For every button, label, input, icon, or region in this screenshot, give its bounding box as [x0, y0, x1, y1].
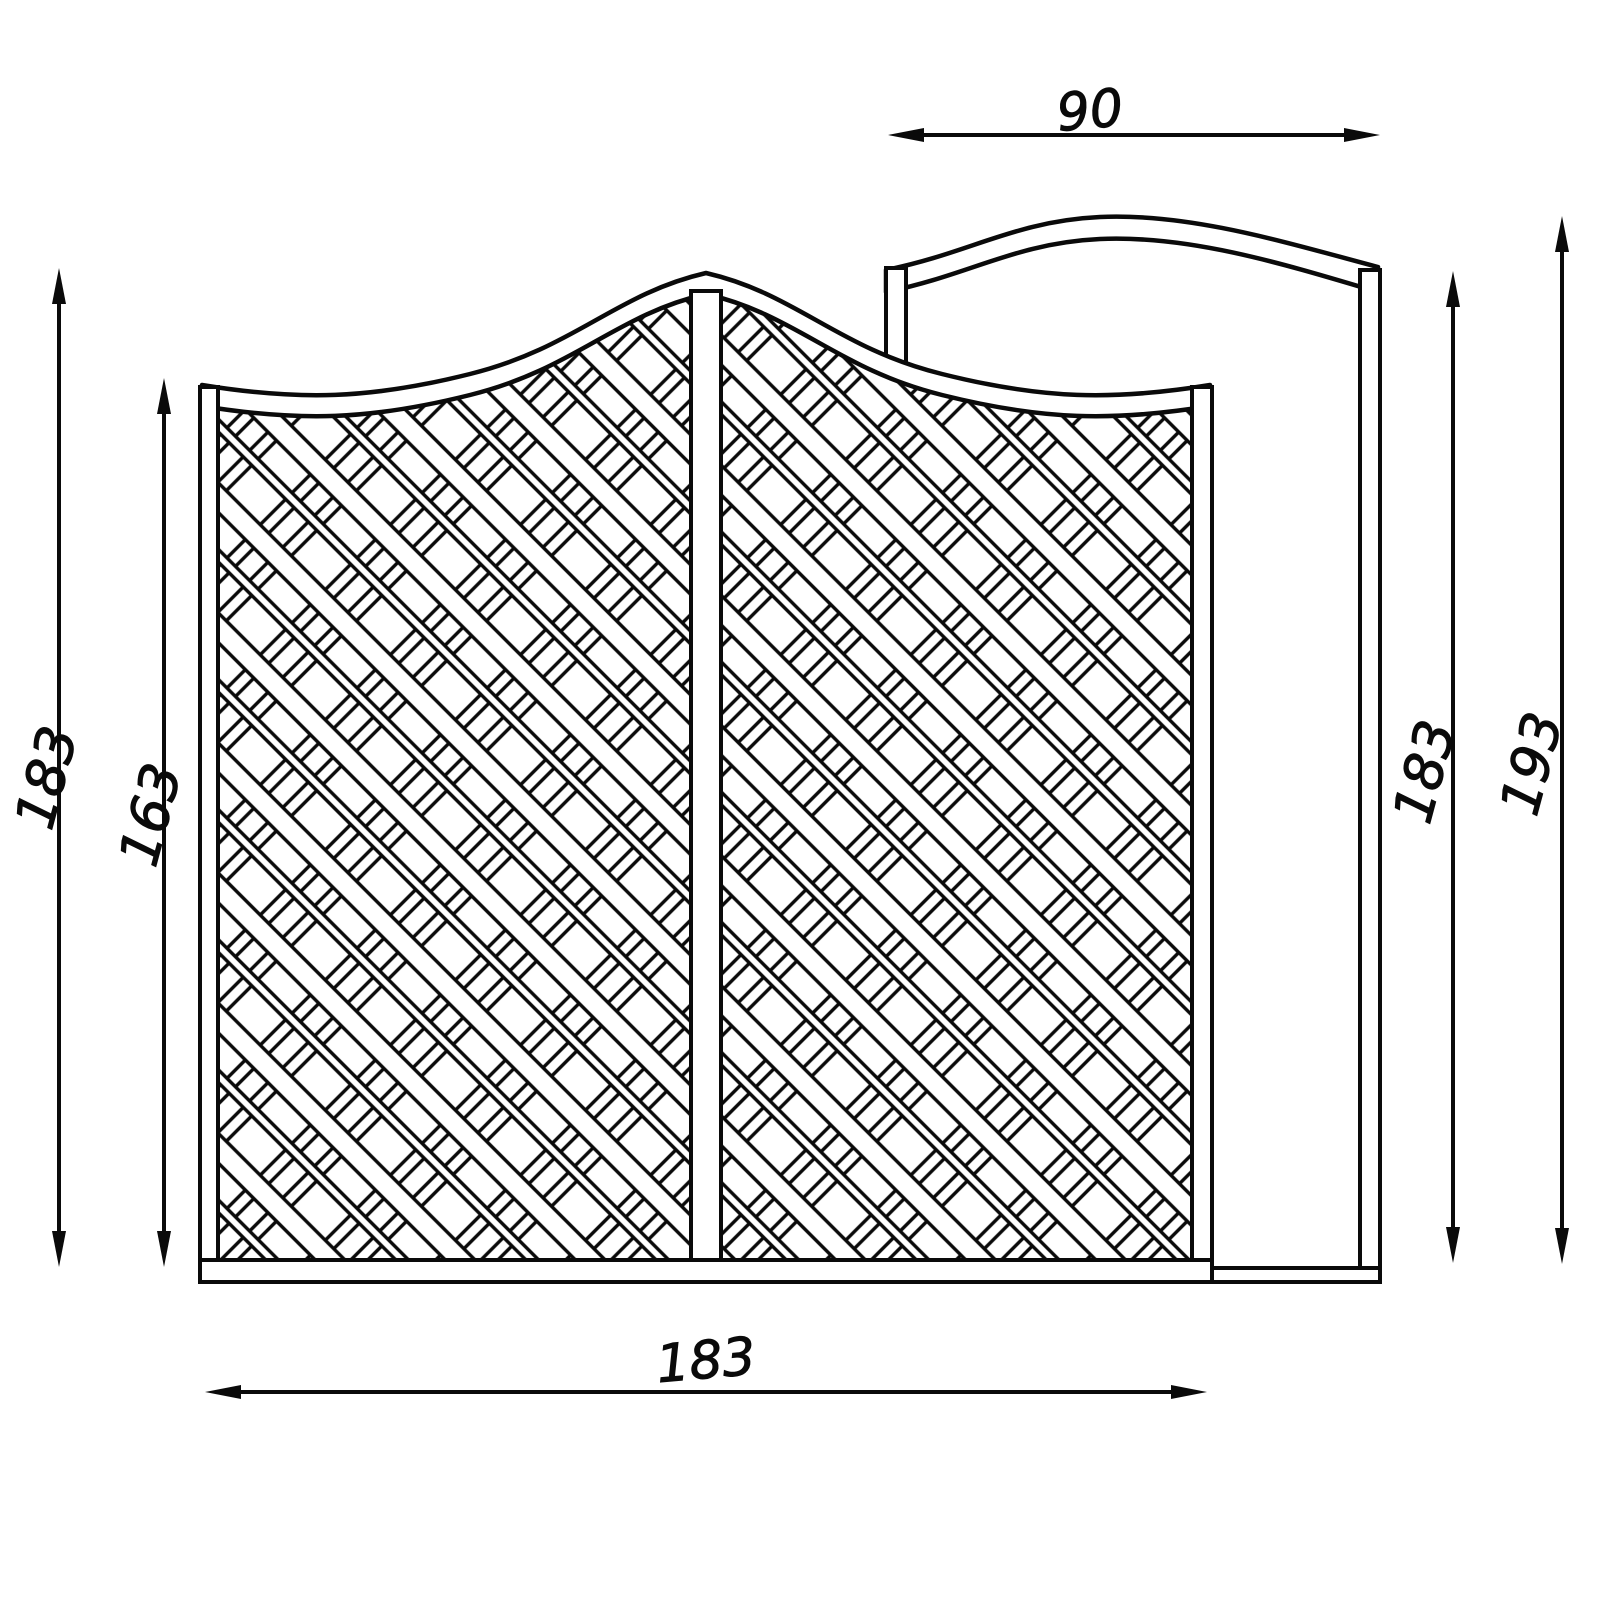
- arrow-up-icon: [1446, 271, 1460, 307]
- dimension-top-width: 90: [888, 78, 1380, 144]
- dimension-left-outer-height: 183: [3, 268, 91, 1267]
- main-panel-bottom-rail: [200, 1260, 1212, 1282]
- fence-panel-technical-drawing: 90 183 183 163 183 193: [0, 0, 1600, 1600]
- arrow-up-icon: [52, 268, 66, 304]
- dimension-right-outer-height: 193: [1488, 216, 1576, 1264]
- arrow-up-icon: [1555, 216, 1569, 252]
- arrow-down-icon: [52, 1231, 66, 1267]
- arrow-right-icon: [1171, 1385, 1207, 1399]
- side-panel-bottom-rail: [1206, 1268, 1380, 1282]
- arrow-left-icon: [205, 1385, 241, 1399]
- technical-drawing-page: 90 183 183 163 183 193: [0, 0, 1600, 1600]
- arrow-up-icon: [157, 378, 171, 414]
- dimension-label-right-inner-height: 183: [1381, 714, 1469, 830]
- main-panel-right-stile: [1192, 387, 1212, 1262]
- main-panel-left-stile: [200, 387, 218, 1262]
- arrow-down-icon: [157, 1231, 171, 1267]
- main-panel-center-divider: [691, 291, 721, 1262]
- dimension-label-left-outer-height: 183: [3, 720, 91, 836]
- arrow-left-icon: [888, 128, 924, 142]
- dimension-label-left-inner-height: 163: [107, 757, 195, 873]
- dimension-bottom-width: 183: [205, 1327, 1207, 1399]
- arrow-right-icon: [1344, 128, 1380, 142]
- side-panel-right-post: [1360, 270, 1380, 1282]
- dimension-label-bottom-width: 183: [654, 1327, 758, 1395]
- arrow-down-icon: [1555, 1228, 1569, 1264]
- dimension-left-inner-height: 163: [107, 378, 195, 1267]
- dimension-label-top-width: 90: [1054, 78, 1125, 144]
- arrow-down-icon: [1446, 1227, 1460, 1263]
- dimension-right-inner-height: 183: [1381, 271, 1469, 1263]
